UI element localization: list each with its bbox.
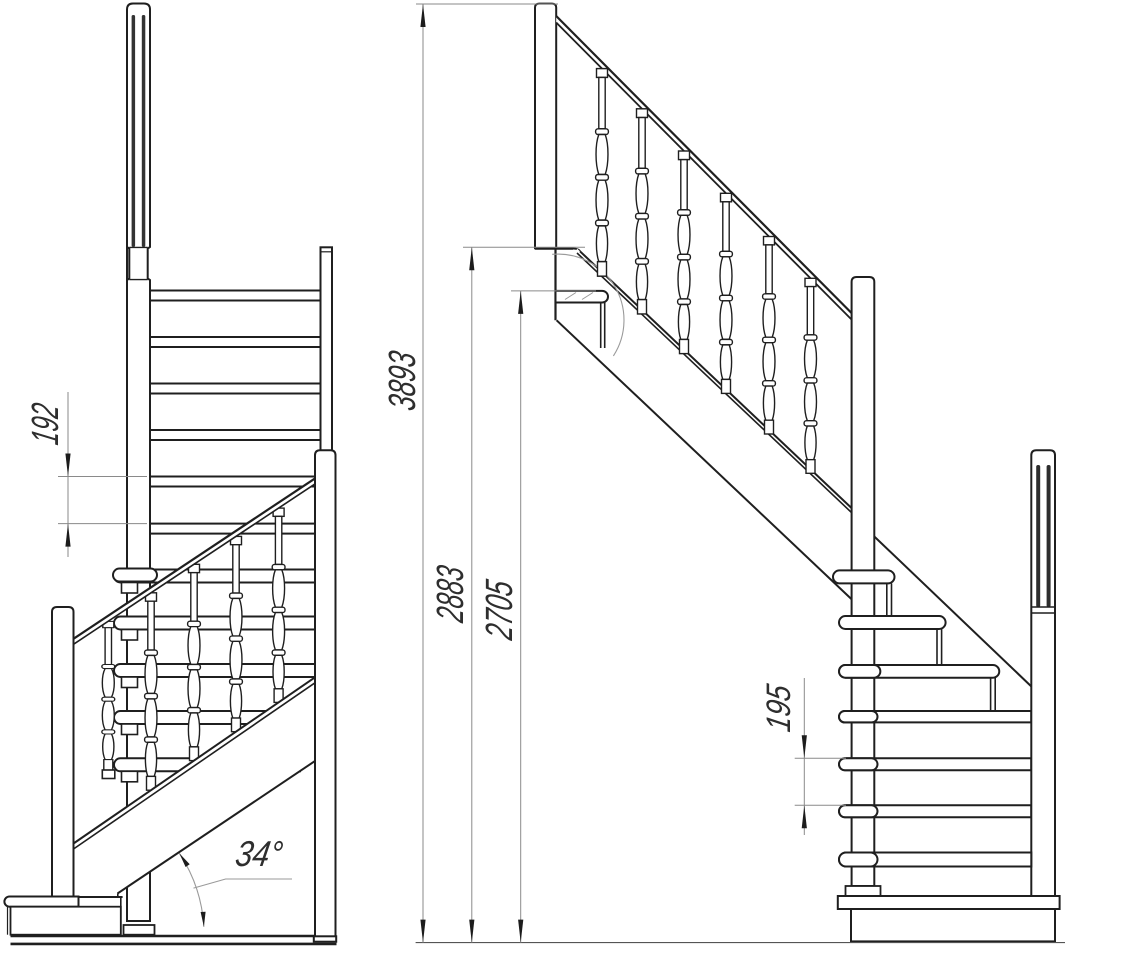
svg-text:34°: 34° [233,833,286,874]
svg-text:192: 192 [24,400,67,448]
svg-text:195: 195 [760,681,798,734]
svg-text:2883: 2883 [429,563,472,626]
svg-text:2705: 2705 [478,577,521,644]
svg-text:3893: 3893 [381,348,424,414]
